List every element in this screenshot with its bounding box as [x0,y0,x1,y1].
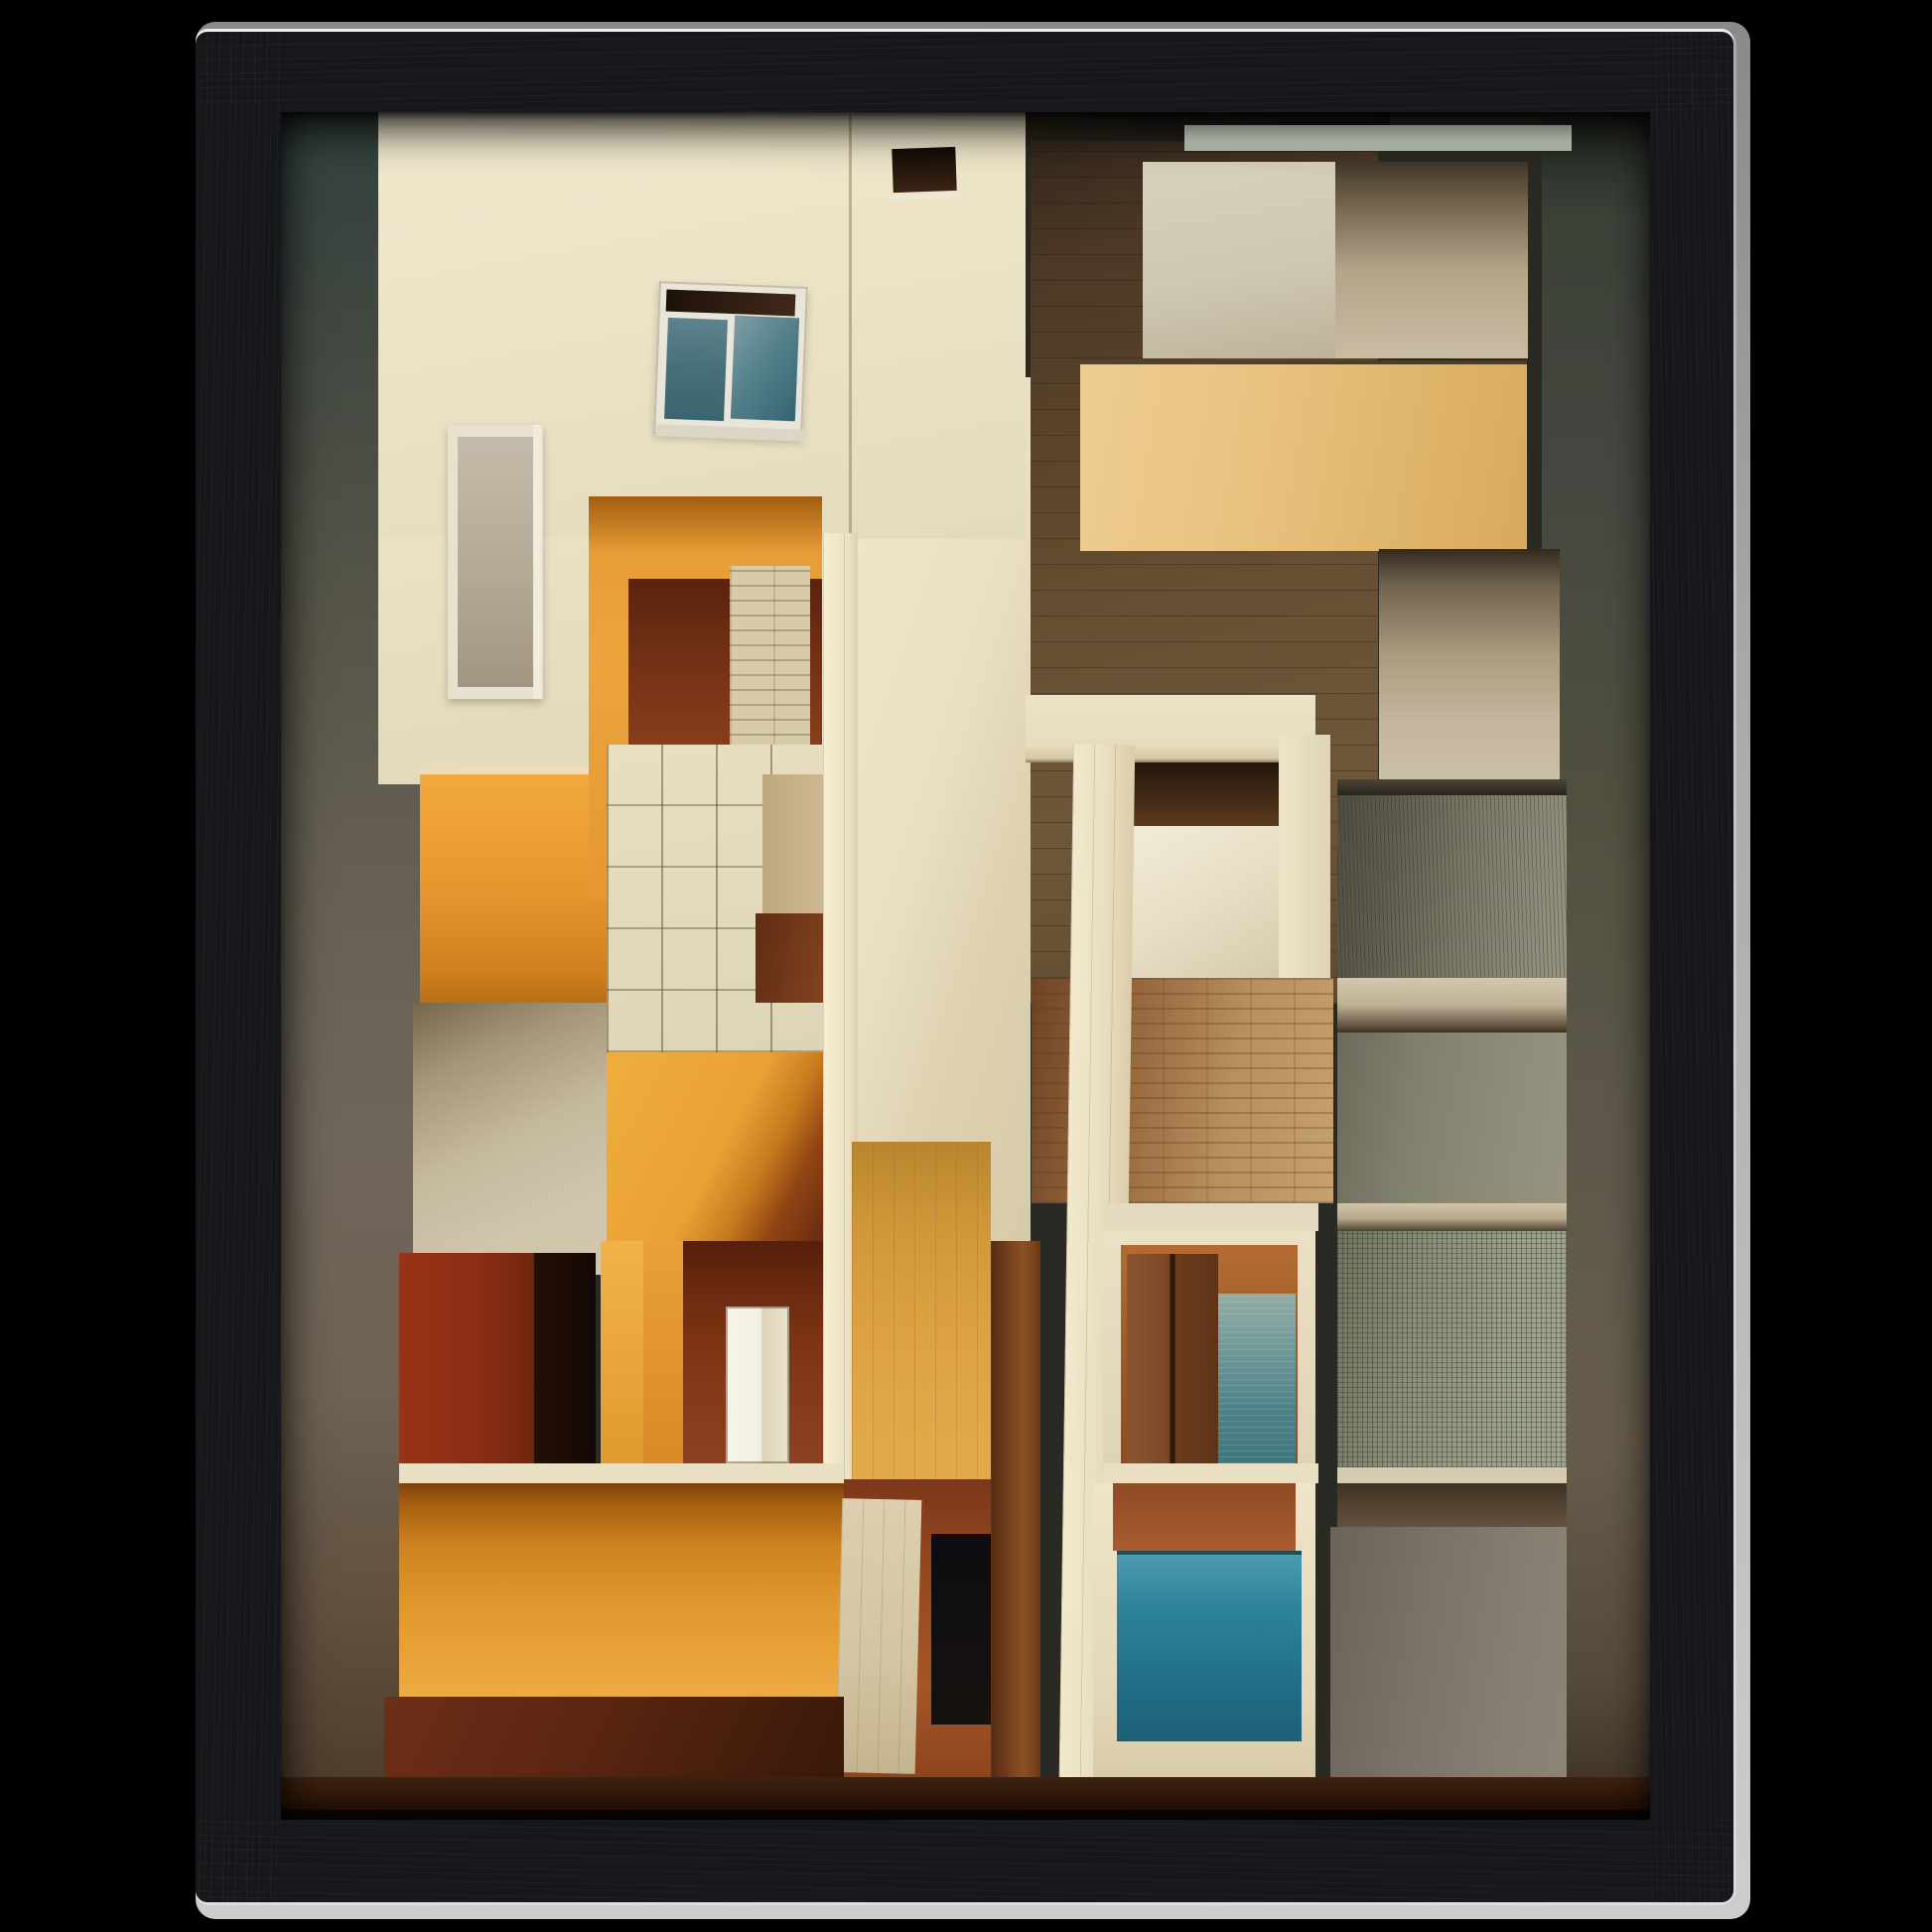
panel-ledge-2 [1337,1203,1567,1231]
niche-inner [1122,826,1287,978]
frame-grain-left [196,32,281,1902]
beige-wall-left [413,1003,628,1275]
orange-block-left [420,772,608,1005]
big-amber-wall [399,1483,844,1697]
tan-panel-right [1335,162,1528,358]
tilted-window-pane-right [731,316,799,422]
lower-window-reveal [1113,1483,1296,1551]
amber-wood-panel [852,1142,991,1479]
cornice-white [1184,125,1572,151]
upper-window-doors [1127,1254,1218,1463]
cream-seam [849,114,852,537]
orange-block-soffit [420,764,608,774]
left-window-glass [458,437,533,687]
concrete-panel-2 [1337,1033,1567,1203]
ground-left [384,1697,844,1786]
framed-poster [196,22,1750,1919]
tan-panel-left [1143,162,1335,358]
frame-grain-right [1652,32,1733,1902]
amber-wood-panel-texture [852,1142,991,1479]
black-slot [534,1253,596,1463]
upper-window-sill [1103,1463,1318,1483]
teal-window-big [1117,1551,1302,1741]
gray-wall-bottom-right [1330,1527,1567,1777]
page-background [0,0,1932,1932]
frame-grain-bottom [196,1820,1733,1902]
vent-slot [892,147,956,193]
textured-glass-panel [1337,1231,1567,1467]
panel-ledge-1 [1337,978,1567,1033]
plank-panel-texture [836,1498,922,1774]
amber-pillar [601,1241,643,1463]
lit-doorway [726,1307,789,1463]
textured-glass-panel-texture [1337,1231,1567,1467]
artwork [281,112,1650,1820]
brown-wood-column-texture [991,1241,1040,1777]
left-window-edge [533,425,541,699]
frame-wood [196,32,1733,1902]
maroon-opening [399,1253,534,1463]
cream-beam [1026,695,1315,762]
panel-shadow-2 [1337,1483,1567,1527]
mosaic-inset-tan [762,774,823,923]
ground-bottom-line [281,1810,1650,1820]
plank-panel [836,1498,922,1774]
frame-grain-top [196,32,1733,112]
concrete-panel-1-texture [1337,795,1567,978]
concrete-panel-1 [1337,795,1567,978]
tilted-window-pane-left [664,318,728,421]
pale-wall-under-amber [1379,549,1560,779]
niche-right-frame [1279,735,1330,978]
cream-sill-left [399,1463,844,1483]
niche-shadow-top [1122,762,1287,826]
artwork-blocks [281,112,1650,1820]
panel-shadow-line [1337,779,1567,795]
panel-edge-cream [1337,1467,1567,1483]
brown-wood-column [991,1241,1040,1777]
lintel-cream [1103,1203,1318,1231]
upper-teal-pane [1218,1294,1296,1463]
mosaic-inset-maroon [756,913,823,1003]
recess-jamb-orange [643,1241,683,1463]
upper-teal-pane-texture [1218,1294,1296,1463]
amber-block [1080,360,1527,551]
